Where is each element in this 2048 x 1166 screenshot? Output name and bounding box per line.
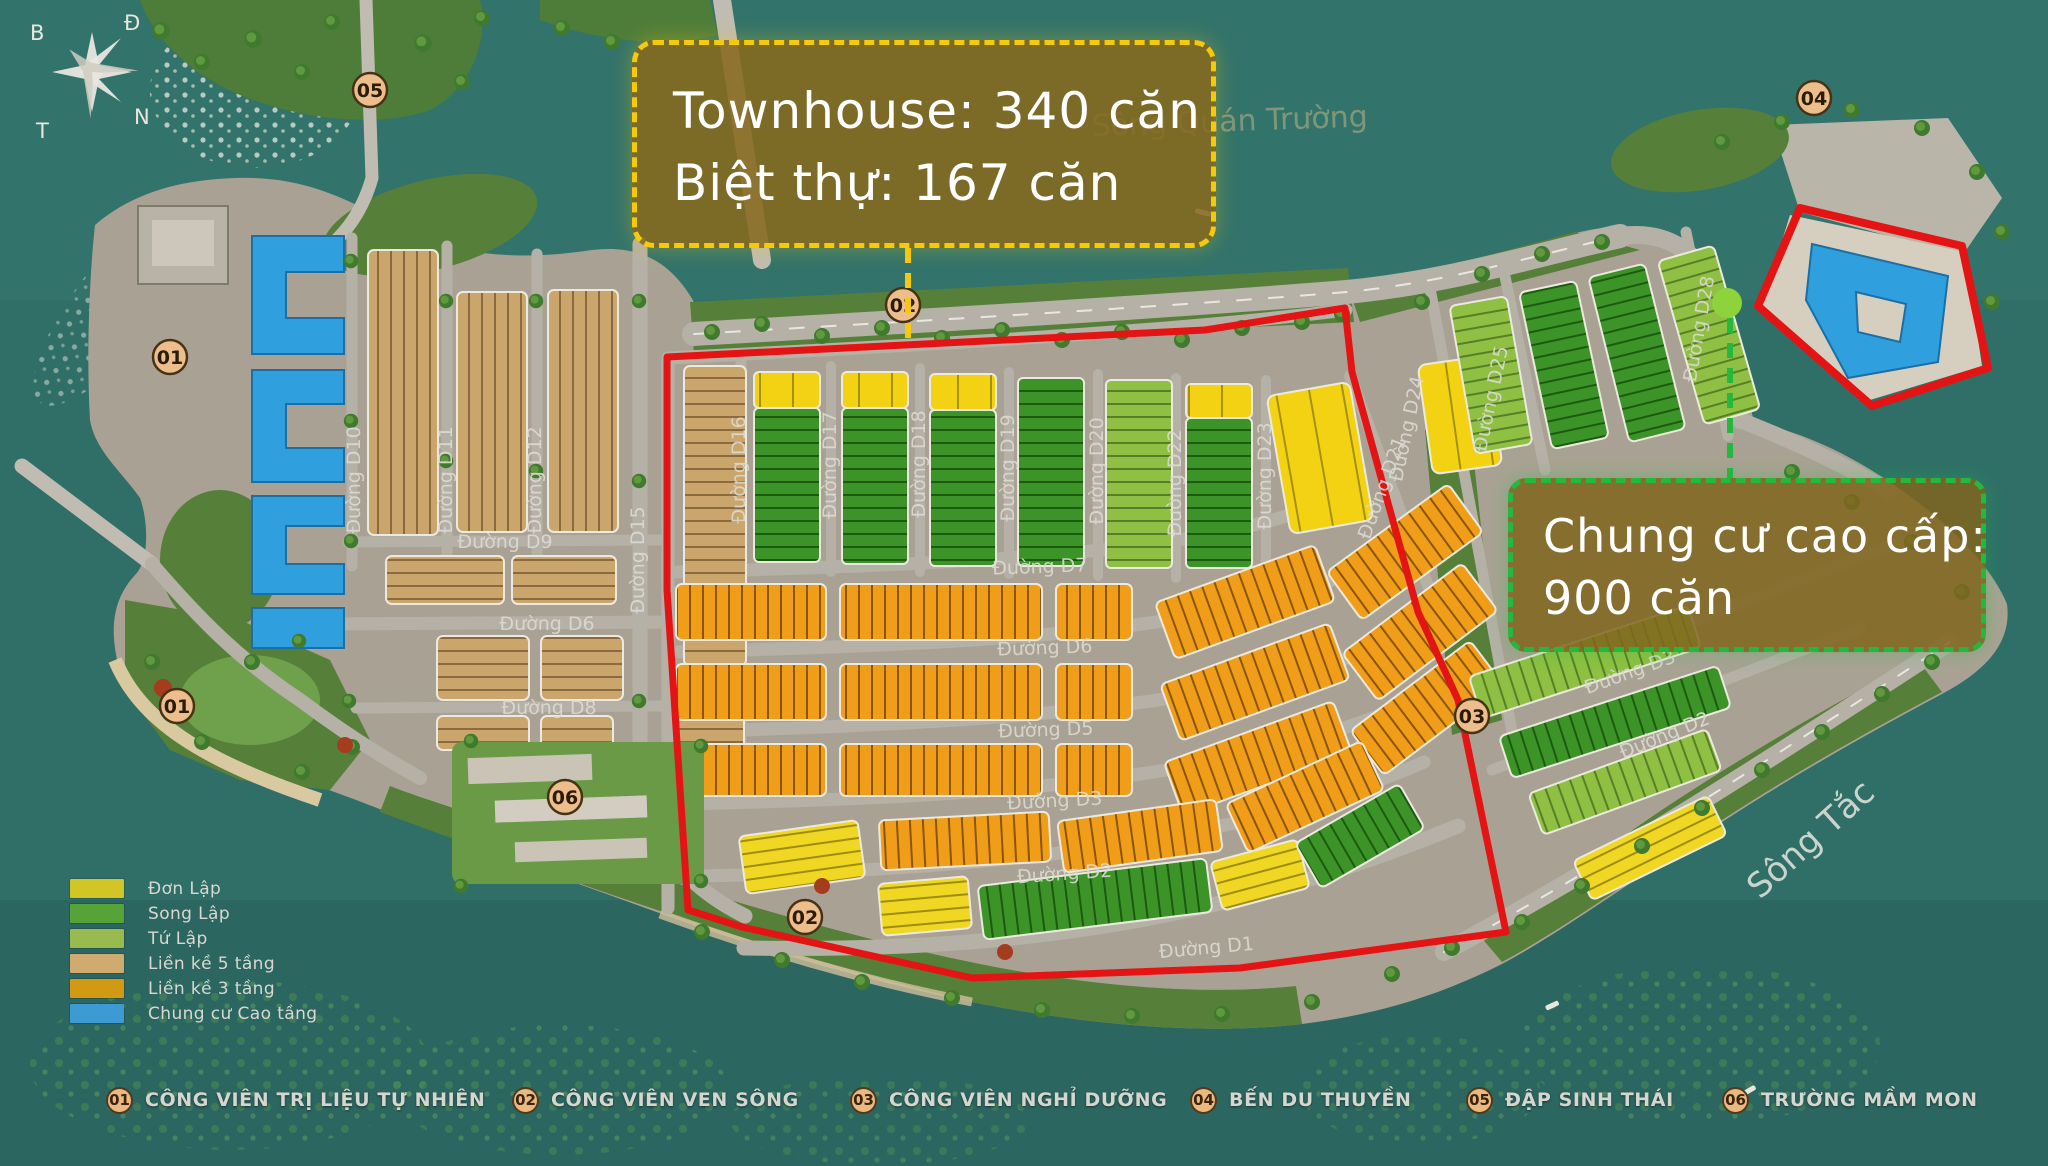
road-label: Đường D8 xyxy=(501,697,596,719)
legend-swatch-lien-ke-3 xyxy=(70,979,124,998)
marker-06-school: 06 xyxy=(548,780,582,814)
legend-label: Song Lập xyxy=(148,904,230,924)
svg-text:02: 02 xyxy=(792,907,818,929)
svg-text:06: 06 xyxy=(552,787,578,809)
marker-01-park-south: 01 xyxy=(160,689,194,723)
townhouse-callout-line2: Biệt thự: 167 căn xyxy=(673,147,1211,219)
legend-swatch-lien-ke-5 xyxy=(70,954,124,973)
road-label: Đường D19 xyxy=(997,414,1019,521)
legend-item: Tứ Lập xyxy=(70,926,317,951)
legend-label: Liền kề 3 tầng xyxy=(148,979,275,999)
legend-label: Chung cư Cao tầng xyxy=(148,1004,317,1024)
amenity-number-badge: 04 xyxy=(1190,1087,1217,1114)
legend-item: Liền kề 5 tầng xyxy=(70,951,317,976)
svg-text:02: 02 xyxy=(890,295,916,317)
legend-swatch-song-lap xyxy=(70,904,124,923)
svg-text:01: 01 xyxy=(164,696,190,718)
amenity-number-badge: 05 xyxy=(1466,1087,1493,1114)
amenity-label: TRƯỜNG MẦM MON xyxy=(1761,1089,1978,1111)
road-label: Đường D12 xyxy=(524,426,546,533)
school-buildings xyxy=(452,742,704,884)
road-label: Đường D5 xyxy=(998,717,1094,742)
marker-04-marina: 04 xyxy=(1797,81,1831,115)
marker-05-dam: 05 xyxy=(353,73,387,107)
amenity-number-badge: 01 xyxy=(106,1087,133,1114)
amenity-item-06: 06 TRƯỜNG MẦM MON xyxy=(1722,1086,1978,1114)
road-label: Đường D7 xyxy=(992,554,1088,579)
road-label: Đường D20 xyxy=(1086,417,1108,524)
amenity-number-badge: 03 xyxy=(850,1087,877,1114)
apartment-callout-line2: 900 căn xyxy=(1543,567,1981,629)
legend: Đơn Lập Song Lập Tứ Lập Liền kề 5 tầng L… xyxy=(70,876,317,1026)
amenity-label: CÔNG VIÊN TRỊ LIỆU TỰ NHIÊN xyxy=(145,1089,485,1111)
amenity-item-03: 03 CÔNG VIÊN NGHỈ DƯỠNG xyxy=(850,1086,1167,1114)
legend-item: Đơn Lập xyxy=(70,876,317,901)
road-label: Đường D10 xyxy=(343,426,365,533)
road-label: Đường D15 xyxy=(627,506,649,613)
svg-text:05: 05 xyxy=(357,80,383,102)
legend-swatch-chung-cu xyxy=(70,1004,124,1023)
legend-item: Chung cư Cao tầng xyxy=(70,1001,317,1026)
legend-item: Song Lập xyxy=(70,901,317,926)
clubhouse-building xyxy=(138,206,228,284)
amenity-item-04: 04 BẾN DU THUYỀN xyxy=(1190,1086,1412,1114)
amenity-item-01: 01 CÔNG VIÊN TRỊ LIỆU TỰ NHIÊN xyxy=(106,1086,485,1114)
svg-text:03: 03 xyxy=(1459,706,1485,728)
road-label: Đường D11 xyxy=(435,426,457,533)
road-label: Đường D22 xyxy=(1164,429,1186,536)
legend-label: Đơn Lập xyxy=(148,879,221,899)
svg-text:01: 01 xyxy=(157,347,183,369)
amenity-item-02: 02 CÔNG VIÊN VEN SÔNG xyxy=(512,1086,799,1114)
legend-label: Liền kề 5 tầng xyxy=(148,954,275,974)
road-label: Đường D9 xyxy=(457,531,552,553)
amenity-number-badge: 06 xyxy=(1722,1087,1749,1114)
apartment-callout-anchor-dot xyxy=(1712,288,1742,318)
road-label: Đường D16 xyxy=(728,416,750,523)
apartment-callout: Chung cư cao cấp: 900 căn xyxy=(1508,478,1986,652)
road-label: Đường D6 xyxy=(499,613,594,635)
marker-03-resort-park: 03 xyxy=(1455,699,1489,733)
townhouse-callout: Townhouse: 340 căn Biệt thự: 167 căn xyxy=(632,40,1216,248)
apartment-callout-line1: Chung cư cao cấp: xyxy=(1543,505,1981,567)
townhouse-callout-line1: Townhouse: 340 căn xyxy=(673,75,1211,147)
legend-item: Liền kề 3 tầng xyxy=(70,976,317,1001)
amenity-label: CÔNG VIÊN NGHỈ DƯỠNG xyxy=(889,1089,1167,1111)
amenity-label: BẾN DU THUYỀN xyxy=(1229,1089,1412,1111)
legend-swatch-don-lap xyxy=(70,879,124,898)
amenity-label: ĐẬP SINH THÁI xyxy=(1505,1089,1674,1111)
road-label: Đường D23 xyxy=(1254,422,1276,529)
marker-01-park-north: 01 xyxy=(153,340,187,374)
masterplan-screenshot: Sông Quán Trường Sông Tắc Đường D10 Đườn… xyxy=(0,0,2048,1166)
amenity-number-badge: 02 xyxy=(512,1087,539,1114)
compass-north-label: B xyxy=(30,21,44,45)
compass-west-label: T xyxy=(35,119,49,143)
svg-text:04: 04 xyxy=(1801,88,1827,110)
road-label: Đường D17 xyxy=(819,411,841,518)
road-label: Đường D6 xyxy=(997,635,1093,660)
legend-swatch-tu-lap xyxy=(70,929,124,948)
marker-02-riverside-south: 02 xyxy=(788,900,822,934)
road-label: Đường D18 xyxy=(908,410,930,517)
amenity-label: CÔNG VIÊN VEN SÔNG xyxy=(551,1089,799,1111)
legend-label: Tứ Lập xyxy=(148,929,208,949)
compass-east-label: Đ xyxy=(124,11,140,35)
compass-south-label: N xyxy=(134,105,150,129)
amenity-item-05: 05 ĐẬP SINH THÁI xyxy=(1466,1086,1674,1114)
marker-02-riverside-north: 02 xyxy=(886,288,920,322)
